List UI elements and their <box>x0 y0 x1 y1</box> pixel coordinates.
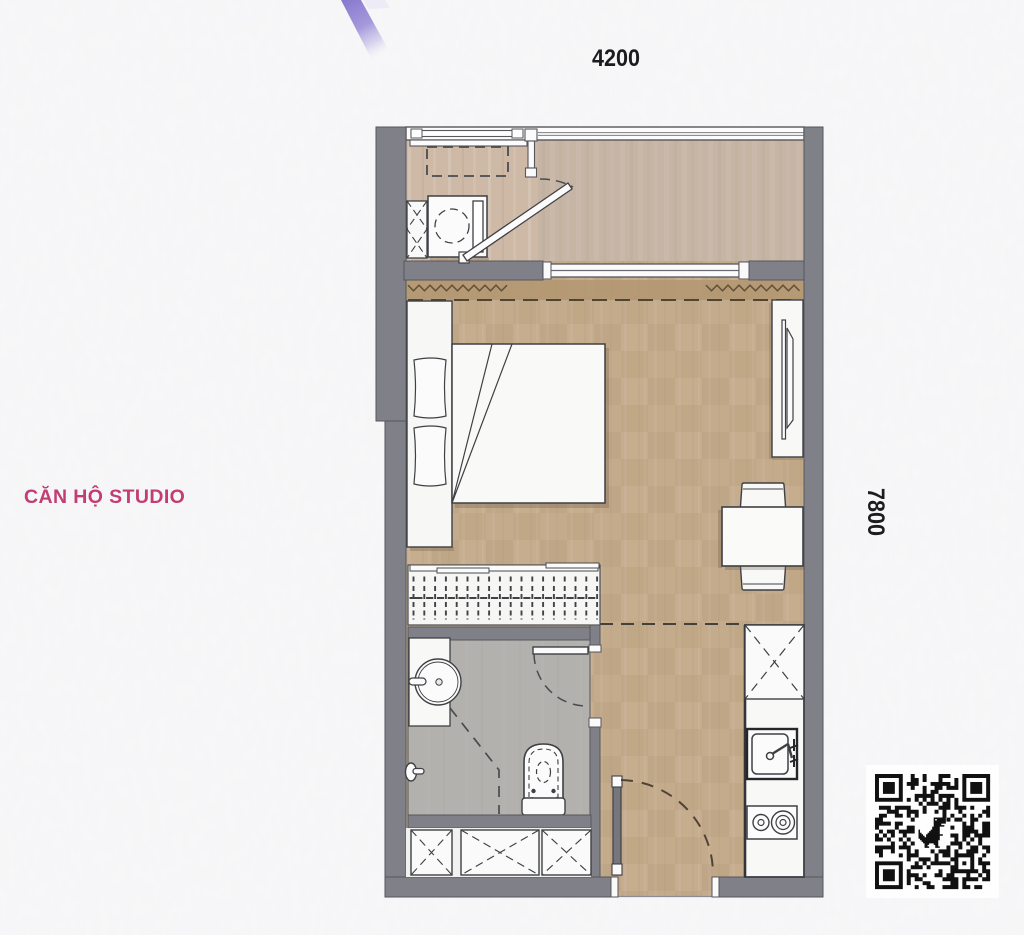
svg-text:4200: 4200 <box>592 45 640 72</box>
svg-text:CĂN HỘ STUDIO: CĂN HỘ STUDIO <box>24 484 185 508</box>
svg-text:7800: 7800 <box>862 488 889 536</box>
